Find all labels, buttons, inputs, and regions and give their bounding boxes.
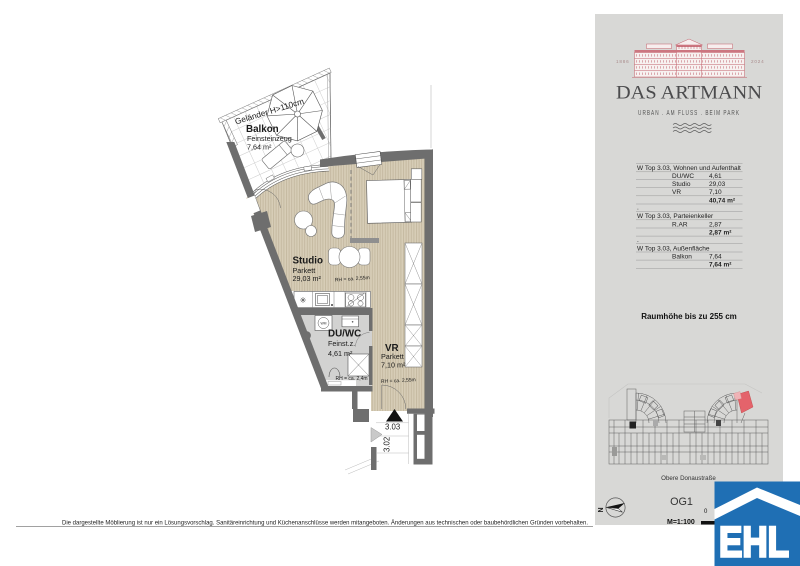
svg-text:2024: 2024 — [751, 59, 764, 64]
svg-text:7,64: 7,64 — [709, 253, 722, 260]
svg-text:N: N — [598, 507, 605, 512]
svg-text:29,03: 29,03 — [709, 181, 726, 188]
svg-text:DU/WC: DU/WC — [672, 173, 694, 180]
svg-text:29,03 m²: 29,03 m² — [293, 274, 322, 283]
svg-text:.: . — [637, 237, 639, 244]
svg-text:DU/WC: DU/WC — [328, 329, 361, 340]
svg-text:2,87: 2,87 — [709, 221, 722, 228]
svg-text:7,64 m²: 7,64 m² — [709, 262, 732, 269]
svg-text:OG1: OG1 — [670, 496, 693, 508]
svg-text:R.AR: R.AR — [672, 221, 688, 228]
svg-text:DAS ARTMANN: DAS ARTMANN — [616, 83, 762, 104]
svg-text:URBAN . AM FLUSS . BEIM PARK: URBAN . AM FLUSS . BEIM PARK — [638, 110, 740, 117]
svg-text:3.02: 3.02 — [383, 437, 392, 452]
svg-text:EHL: EHL — [719, 519, 789, 566]
svg-text:Balkon: Balkon — [672, 253, 692, 260]
svg-text:Die dargestellte Möblierung is: Die dargestellte Möblierung ist nur ein … — [62, 520, 588, 527]
svg-text:4,61 m²: 4,61 m² — [328, 349, 353, 358]
svg-text:VR: VR — [672, 189, 681, 196]
svg-text:M=1:100: M=1:100 — [667, 519, 695, 526]
svg-text:WM: WM — [320, 321, 326, 325]
svg-text:RH = ca. 2,4m: RH = ca. 2,4m — [336, 376, 368, 382]
svg-text:Studio: Studio — [672, 181, 691, 188]
svg-text:4,61: 4,61 — [709, 173, 722, 180]
svg-text:Obere Donaustraße: Obere Donaustraße — [661, 475, 716, 482]
svg-text:.: . — [637, 205, 639, 212]
svg-text:W Top 3.03, Wohnen und Aufenth: W Top 3.03, Wohnen und Aufenthalt — [637, 165, 741, 172]
svg-text:40,74 m²: 40,74 m² — [709, 197, 736, 204]
svg-text:Feinst.z.: Feinst.z. — [328, 339, 355, 348]
svg-text:Raumhöhe bis zu 255 cm: Raumhöhe bis zu 255 cm — [641, 312, 737, 321]
svg-text:W Top 3.03, Außenfläche: W Top 3.03, Außenfläche — [637, 245, 710, 252]
svg-text:7,64 m²: 7,64 m² — [247, 143, 272, 152]
svg-text:7,10 m²: 7,10 m² — [381, 361, 406, 370]
svg-text:1886: 1886 — [616, 59, 629, 64]
svg-text:W Top 3.03, Parteienkeller: W Top 3.03, Parteienkeller — [637, 213, 714, 220]
svg-text:3.03: 3.03 — [385, 423, 400, 432]
svg-text:7,10: 7,10 — [709, 189, 722, 196]
svg-text:2,87 m²: 2,87 m² — [709, 229, 732, 236]
svg-text:Studio: Studio — [293, 256, 323, 267]
